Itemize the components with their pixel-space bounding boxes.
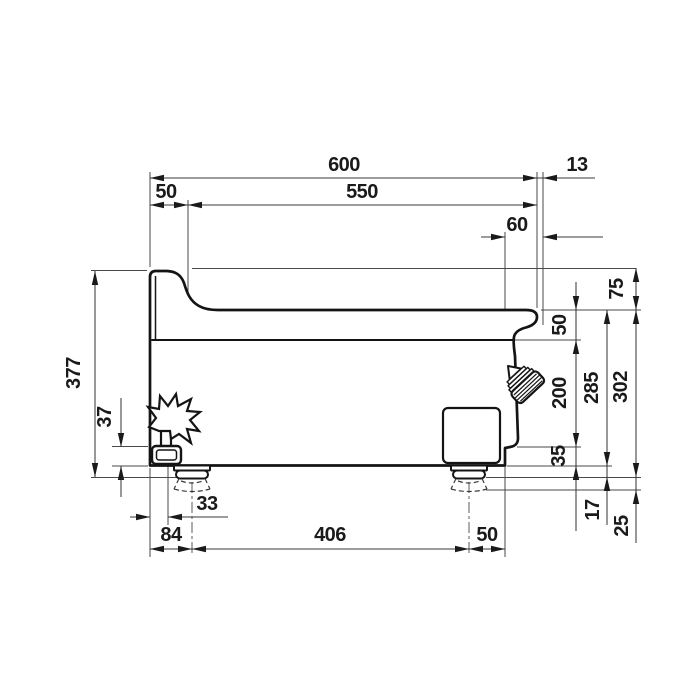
drawing-canvas: 600 13 550 50 60 33 84 406 50 377 37 75 … (0, 0, 700, 700)
appliance-body (150, 271, 537, 466)
dim-label-foot-height: 17 (582, 499, 604, 521)
technical-drawing: 600 13 550 50 60 33 84 406 50 377 37 75 … (0, 0, 700, 700)
dim-label-overall-width: 600 (328, 154, 360, 176)
dim-label-overall-height: 377 (63, 357, 85, 389)
dim-label-gas-center-offset: 33 (196, 493, 218, 515)
dim-label-foot-adjust-range: 25 (611, 515, 633, 537)
dim-label-feet-spacing: 406 (314, 524, 346, 546)
dim-label-base-band-height: 35 (548, 445, 570, 467)
dim-label-height-over-feet: 302 (610, 371, 632, 403)
gas-fitting-inner (157, 450, 177, 460)
dim-label-gas-fitting-height: 37 (94, 406, 116, 428)
control-box (443, 408, 500, 463)
dim-label-worktop-edge-height: 50 (549, 314, 571, 336)
dim-label-knob-protrusion: 13 (566, 154, 588, 176)
dim-label-front-foot-offset: 50 (476, 524, 498, 546)
dim-label-rear-edge-width: 50 (155, 181, 177, 203)
dim-label-front-overhang: 60 (506, 214, 528, 236)
dim-label-front-panel-height: 200 (549, 377, 571, 409)
dim-label-body-height: 285 (581, 372, 603, 404)
dim-label-splashback-height: 75 (606, 278, 628, 300)
dim-label-worktop-width: 550 (346, 181, 378, 203)
dim-label-rear-foot-offset: 84 (160, 524, 183, 546)
